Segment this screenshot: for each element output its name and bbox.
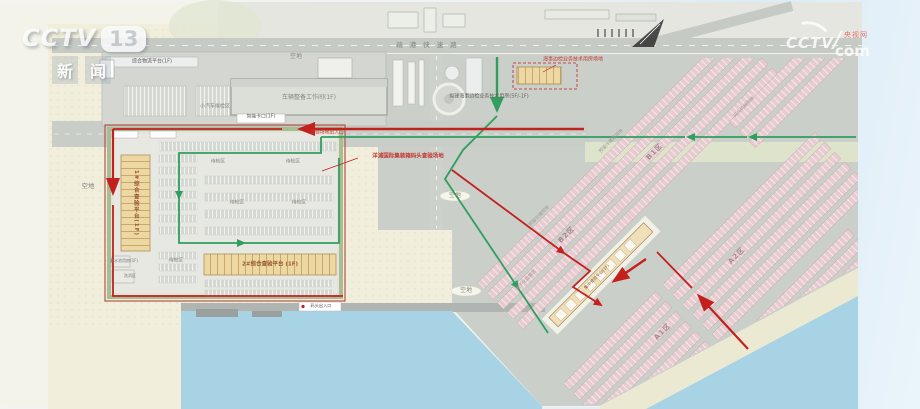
- cctv-logo-text: CCTV: [22, 24, 96, 52]
- watermark-cctv-text: CCTV: [786, 34, 834, 52]
- cctv13-logo: CCTV13: [22, 24, 146, 52]
- tv-frame: 疏港快速路 空地 空地 空地 空地 综合物流平台(1F) 小汽车候检区 车辆整备…: [0, 0, 920, 409]
- vehicle-workshop-building: [231, 79, 387, 115]
- news-char: 新: [52, 56, 78, 84]
- site-plan-svg: [0, 0, 920, 409]
- channel-number-badge: 13: [101, 26, 146, 52]
- watermark-yangshiwang-text: 央视网: [844, 30, 868, 40]
- cctv13-news-text: 新闻: [52, 56, 118, 84]
- cctv-com-watermark: CCTV / com 央视网: [786, 22, 896, 66]
- platform-2-building: [204, 254, 336, 275]
- platform-1-building: [121, 155, 150, 251]
- inspection-compound: [105, 125, 345, 301]
- news-char: 闻: [85, 56, 111, 84]
- watermark-com-text: com: [835, 42, 870, 60]
